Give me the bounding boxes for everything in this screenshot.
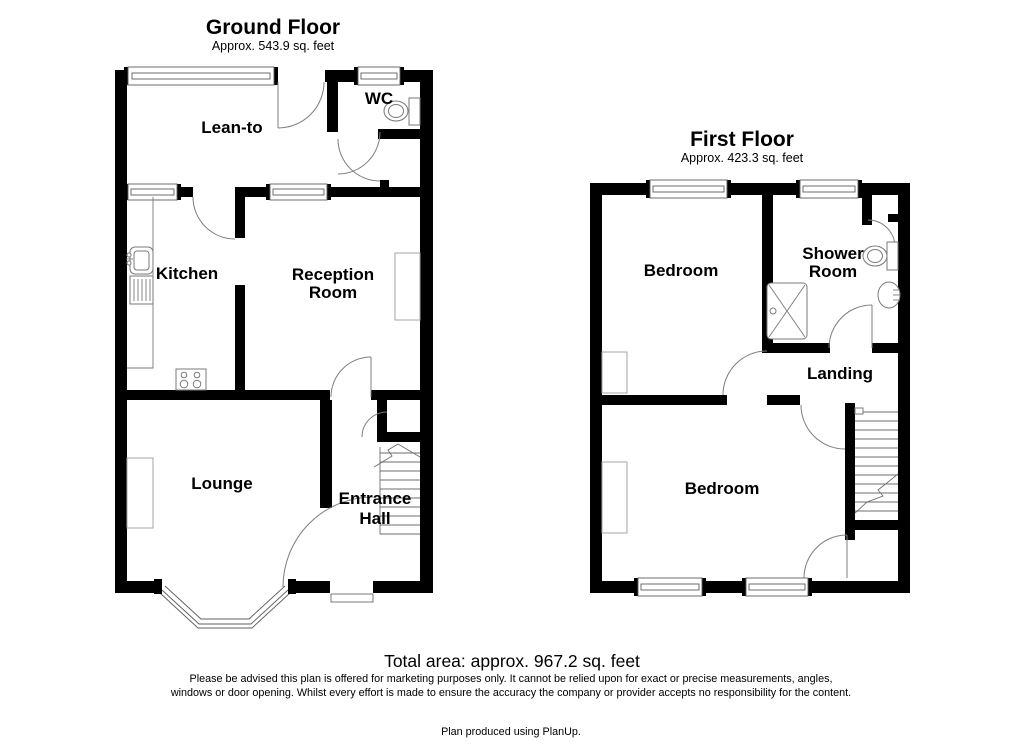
window-icon	[634, 578, 706, 596]
room-label-lean-to: Lean-to	[201, 118, 262, 137]
room-label-bedroom-back: Bedroom	[685, 479, 760, 498]
first-floor: First Floor Approx. 423.3 sq. feet	[590, 128, 910, 596]
door-arc-icon	[278, 82, 324, 128]
shower-tray-icon	[767, 283, 807, 339]
window-icon	[124, 67, 278, 85]
kitchen-sink-icon	[126, 247, 153, 304]
cooker-hob-icon	[176, 369, 206, 390]
first-floor-title: First Floor	[690, 128, 794, 151]
room-label-hall: Hall	[359, 509, 390, 528]
disclaimer-line-2: windows or door opening. Whilst every ef…	[170, 687, 851, 699]
window-icon	[354, 67, 404, 85]
floorplan-drawing: Ground Floor Approx. 543.9 sq. feet	[0, 0, 1024, 744]
furniture-rect	[602, 352, 627, 393]
door-arc-icon	[829, 305, 872, 348]
window-icon	[646, 180, 731, 198]
window-icon	[796, 180, 862, 198]
door-arc-icon	[338, 132, 380, 174]
ground-floor-windows	[124, 67, 404, 628]
ground-floor-doors	[193, 82, 387, 602]
window-icon	[742, 578, 812, 596]
first-floor-area: Approx. 423.3 sq. feet	[681, 151, 804, 165]
basin-icon	[878, 282, 900, 308]
disclaimer-line-1: Please be advised this plan is offered f…	[190, 673, 833, 685]
ground-floor-fixtures	[126, 98, 420, 390]
toilet-icon	[863, 242, 898, 270]
room-label-lounge: Lounge	[191, 474, 252, 493]
room-label-shower: Shower	[802, 244, 864, 263]
first-floor-windows	[634, 180, 862, 596]
room-label-shower-2: Room	[809, 262, 857, 281]
ground-floor: Ground Floor Approx. 543.9 sq. feet	[115, 16, 433, 628]
first-floor-furniture	[602, 352, 627, 533]
room-label-wc: WC	[365, 89, 393, 108]
credit-label: Plan produced using PlanUp.	[441, 726, 581, 738]
room-label-landing: Landing	[807, 364, 873, 383]
door-arc-icon	[338, 139, 380, 181]
furniture-rect	[395, 253, 420, 320]
room-label-reception-2: Room	[309, 283, 357, 302]
ground-floor-area: Approx. 543.9 sq. feet	[212, 39, 335, 53]
floorplan-page: Ground Floor Approx. 543.9 sq. feet	[0, 0, 1024, 744]
door-arc-icon	[723, 351, 767, 395]
door-arc-icon	[801, 405, 845, 449]
window-icon	[124, 184, 181, 200]
staircase-icon	[855, 408, 898, 513]
footer: Total area: approx. 967.2 sq. feet Pleas…	[170, 651, 851, 738]
door-arc-icon	[804, 535, 847, 578]
furniture-rect	[127, 458, 153, 528]
room-label-bedroom-front: Bedroom	[644, 261, 719, 280]
door-arc-icon	[193, 197, 235, 239]
furniture-rect	[602, 462, 627, 533]
room-label-entrance: Entrance	[339, 489, 412, 508]
room-label-kitchen: Kitchen	[156, 264, 218, 283]
first-floor-labels: Bedroom Shower Room Landing Bedroom	[644, 244, 873, 498]
total-area-label: Total area: approx. 967.2 sq. feet	[384, 651, 640, 671]
room-label-reception: Reception	[292, 265, 374, 284]
window-icon	[266, 184, 331, 200]
ground-floor-title: Ground Floor	[206, 16, 340, 39]
